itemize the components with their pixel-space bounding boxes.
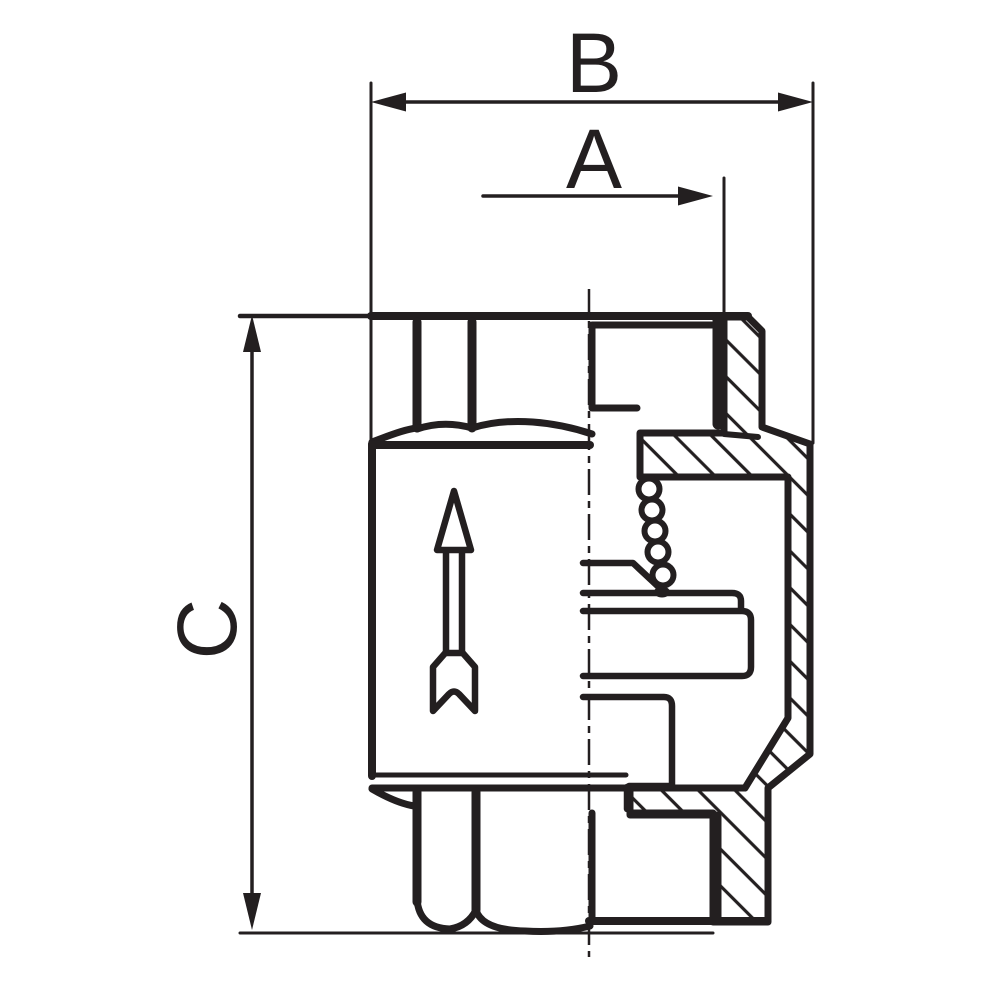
poppet-spring-seat-edge xyxy=(583,563,664,592)
flow-arrow-head xyxy=(437,491,471,550)
spring-coils xyxy=(639,479,674,598)
top-cavity-outline xyxy=(592,325,712,408)
flow-arrow-shaft xyxy=(446,549,462,653)
valve-technical-drawing: C B A xyxy=(0,0,1000,1000)
dimension-b-label: B xyxy=(566,16,622,110)
hex-bottom xyxy=(372,789,590,931)
hex-bottom-corner-curve xyxy=(372,789,414,806)
technical-drawing-page: C B A xyxy=(0,0,1000,1000)
spring-coil-2 xyxy=(642,500,663,521)
dimension-b-arrowhead-left xyxy=(371,93,406,112)
spring-coil-3 xyxy=(645,521,666,542)
dimension-a-label: A xyxy=(566,112,622,206)
flow-arrow-fletching xyxy=(433,651,475,711)
spring-coil-4 xyxy=(648,542,669,563)
poppet-stem-flange xyxy=(583,697,672,785)
dimension-c-arrowhead-down xyxy=(243,893,261,930)
bottom-cavity-outline xyxy=(592,813,713,920)
body-middle xyxy=(372,444,632,788)
dimension-c-arrowhead-up xyxy=(243,315,261,352)
poppet-assembly xyxy=(583,563,751,809)
poppet-plate-top xyxy=(583,593,741,609)
dimension-b-arrowhead-right xyxy=(778,93,813,112)
dimension-a-arrowhead xyxy=(678,187,713,206)
top-port-cavity xyxy=(592,320,718,424)
hex-top xyxy=(372,322,592,442)
poppet-disc xyxy=(583,611,751,676)
seat-bridge-top-edge xyxy=(724,434,758,437)
spring-coil-1 xyxy=(639,479,660,500)
valve-body-external xyxy=(240,316,748,931)
dimension-a: A xyxy=(483,112,724,316)
flow-direction-arrow xyxy=(433,491,475,711)
dimension-c-label: C xyxy=(160,599,254,660)
hex-bottom-chamfer-curve xyxy=(417,899,590,931)
hex-top-chamfer-curve xyxy=(372,421,592,442)
